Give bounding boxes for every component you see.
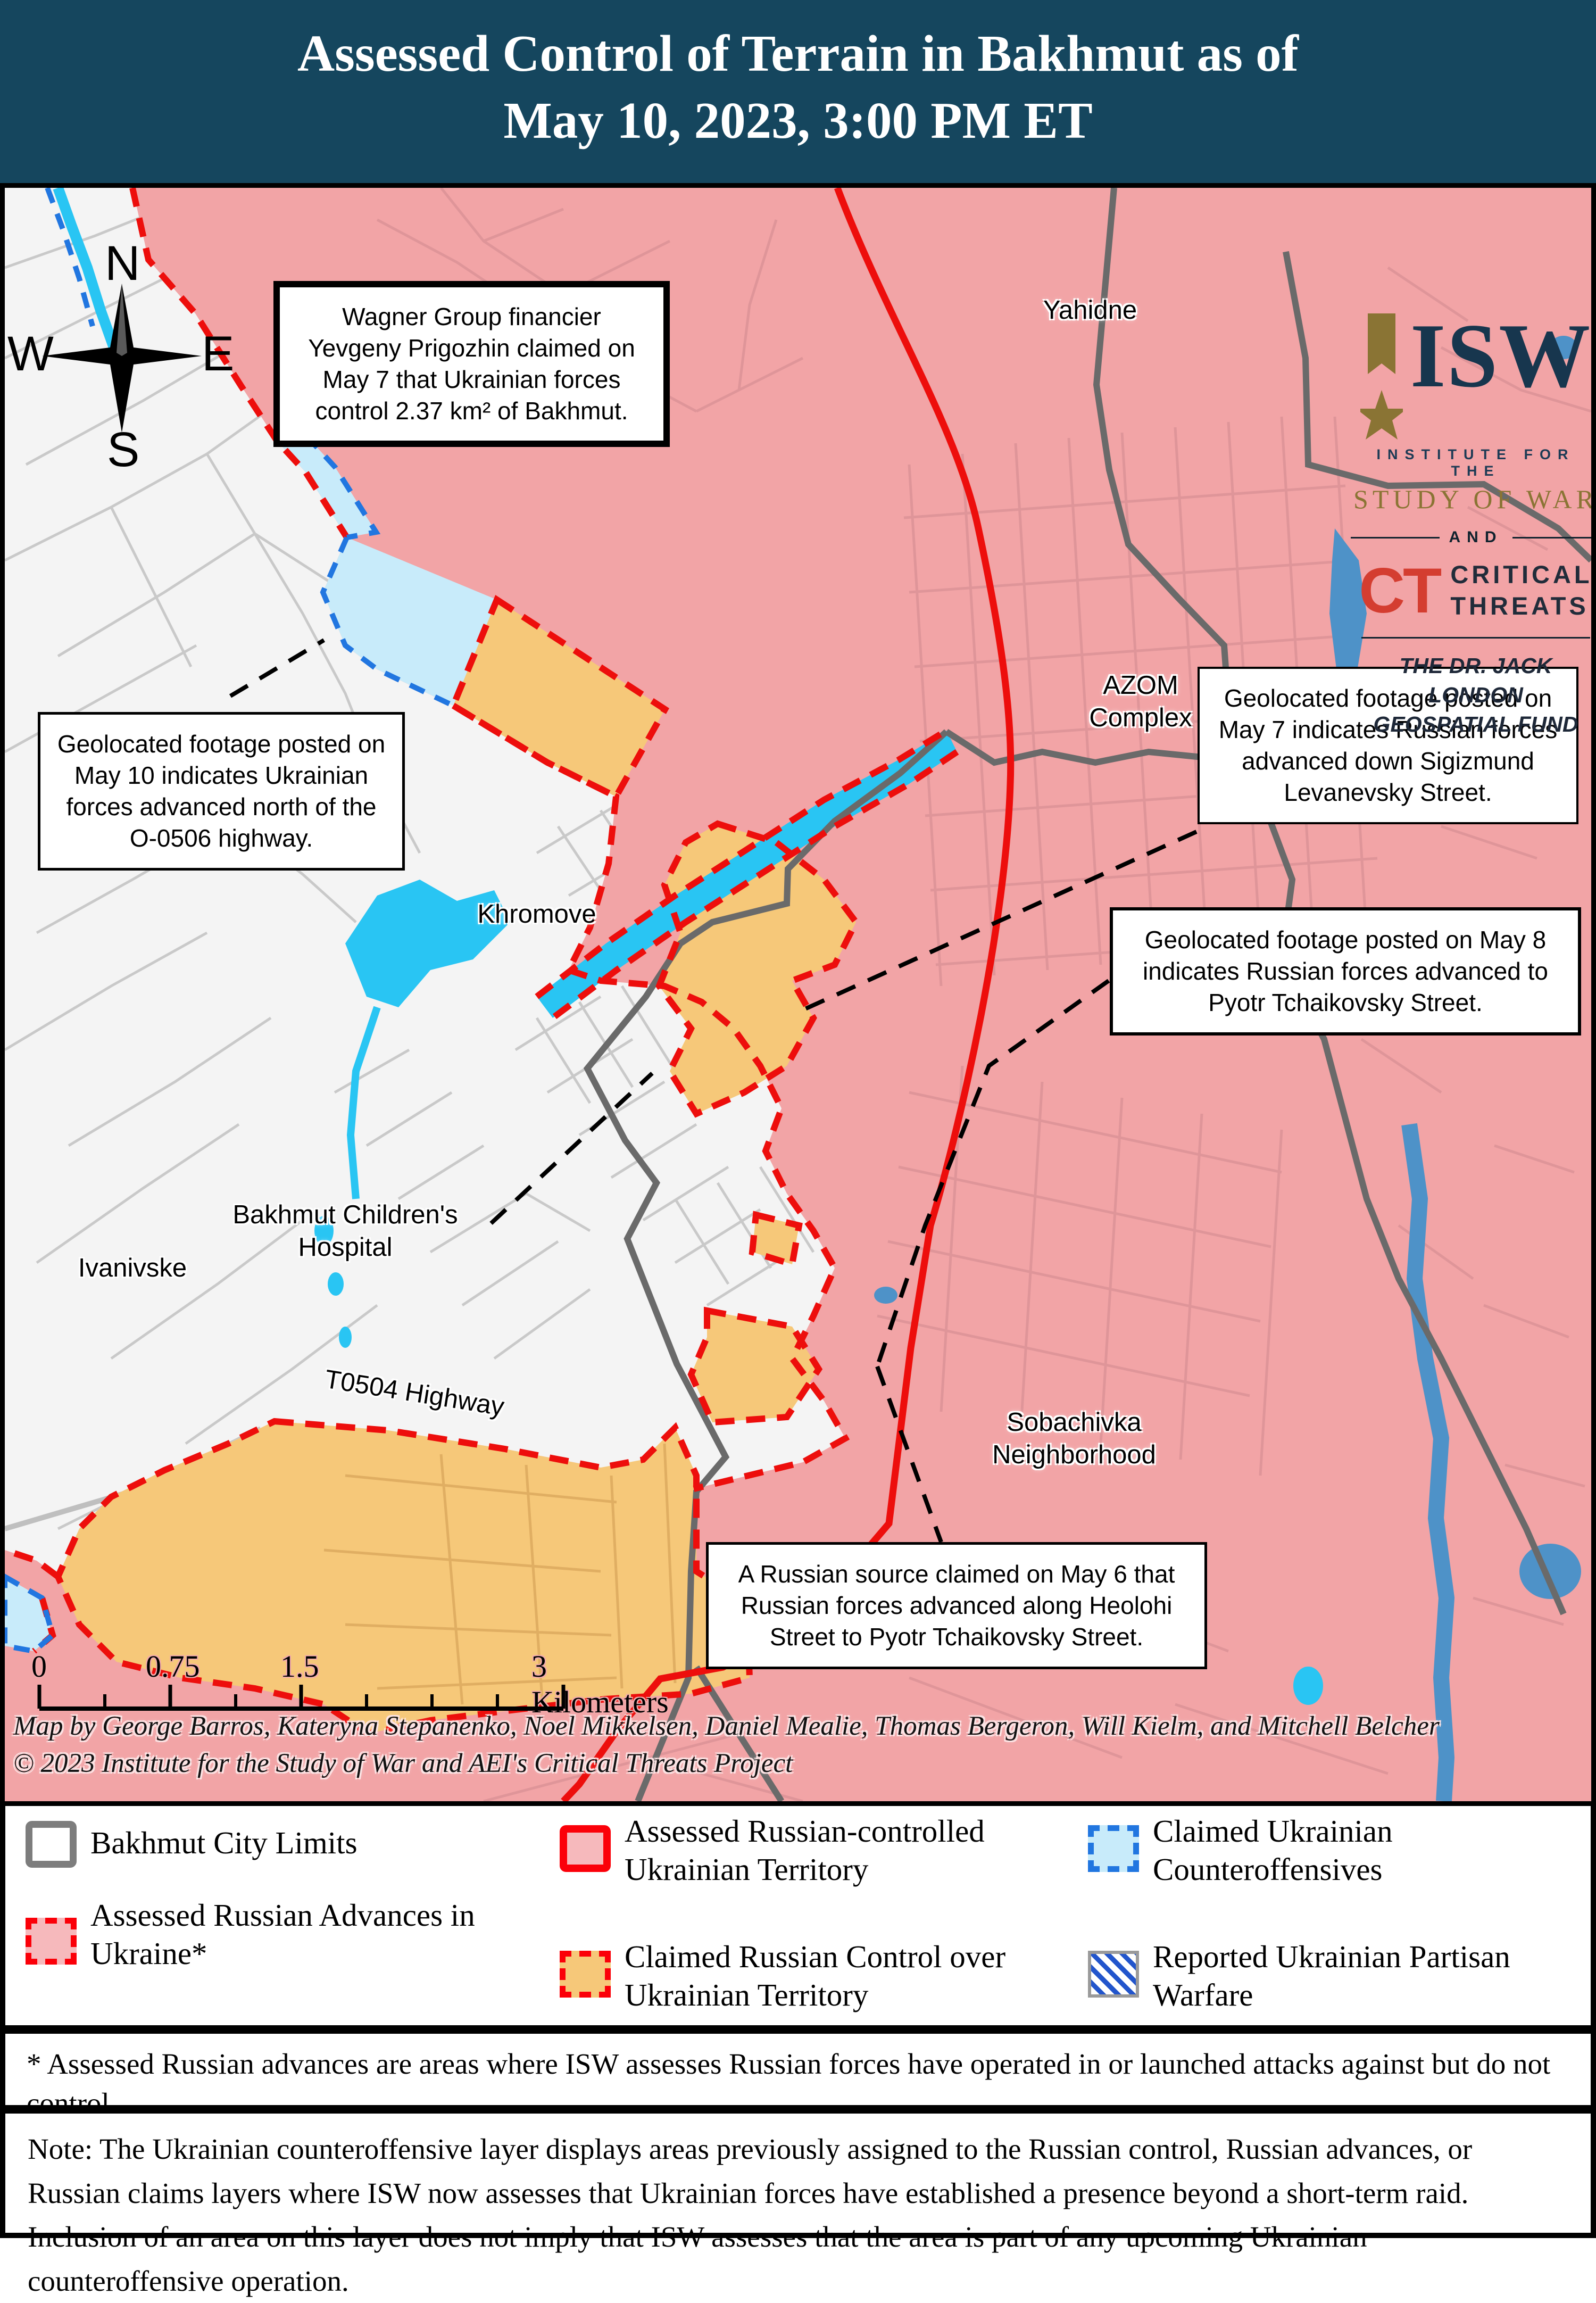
legend-item-russian-advances: Assessed Russian Advances in Ukraine* (26, 1896, 475, 1973)
map-attribution-line2: © 2023 Institute for the Study of War an… (13, 1748, 793, 1779)
scale-15: 1.5 (280, 1648, 319, 1684)
pond-city-small (874, 1287, 897, 1304)
map-legend: Bakhmut City Limits Assessed Russian Adv… (0, 1806, 1596, 2025)
russian-advances-swatch-icon (26, 1918, 77, 1965)
label-sobachivka: Sobachivka Neighborhood (962, 1406, 1186, 1472)
pond-small-2 (328, 1272, 344, 1296)
advances-footnote: * Assessed Russian advances are areas wh… (0, 2025, 1596, 2105)
map-canvas[interactable]: N W E S Yahidne AZOM Complex Khromove Ba… (0, 183, 1596, 1806)
label-childrens-hospital: Bakhmut Children's Hospital (212, 1199, 478, 1264)
legend-item-russian-controlled: Assessed Russian-controlled Ukrainian Te… (560, 1812, 985, 1889)
legend-item-city-limits: Bakhmut City Limits (26, 1821, 358, 1868)
page-title-line1: Assessed Control of Terrain in Bakhmut a… (0, 0, 1596, 87)
compass-south-label: S (107, 422, 139, 478)
isw-institute-text: INSTITUTE FOR THE (1351, 446, 1596, 479)
critical-threats-ct-icon: CT (1359, 562, 1440, 619)
legend-item-partisan-warfare: Reported Ukrainian Partisan Warfare (1088, 1938, 1510, 2015)
callout-may6-russian-claim: A Russian source claimed on May 6 that R… (706, 1542, 1207, 1669)
scale-0: 0 (31, 1648, 47, 1684)
logo-rule (1361, 637, 1590, 639)
scale-bar-ticks (37, 1685, 595, 1711)
divider-right (1512, 537, 1596, 539)
callout-may10-ukrainian-advance: Geolocated footage posted on May 10 indi… (38, 712, 405, 871)
legend-label: Claimed Russian Control over Ukrainian T… (625, 1938, 1005, 2015)
callout-wagner-claim: Wagner Group financier Yevgeny Prigozhin… (273, 281, 670, 447)
counteroffensives-swatch-icon (1088, 1825, 1139, 1872)
scale-075: 0.75 (146, 1648, 200, 1684)
geospatial-fund-text: THE DR. JACK LONDON GEOSPATIAL FUND (1351, 651, 1596, 740)
scale-bar: 0 0.75 1.5 3 Kilometers (31, 1648, 617, 1712)
partisan-warfare-swatch-icon (1088, 1951, 1139, 1998)
logo-and-text: AND (1449, 528, 1503, 546)
label-azom-complex: AZOM Complex (1061, 669, 1220, 735)
isw-ribbon-star-icon (1360, 310, 1403, 443)
isw-ct-logo: ISW INSTITUTE FOR THE STUDY OF WAR AND C… (1351, 310, 1596, 740)
legend-label: Claimed Ukrainian Counteroffensives (1153, 1812, 1393, 1889)
divider-left (1351, 537, 1440, 539)
critical-threats-wordmark: CRITICAL THREATS (1450, 559, 1592, 622)
compass-west-label: W (7, 326, 54, 382)
compass-east-label: E (202, 326, 234, 382)
callout-may8-russian-advance: Geolocated footage posted on May 8 indic… (1110, 907, 1581, 1035)
legend-label: Reported Ukrainian Partisan Warfare (1153, 1938, 1510, 2015)
map-attribution-line1: Map by George Barros, Kateryna Stepanenk… (13, 1711, 1440, 1742)
russian-controlled-swatch-icon (560, 1825, 611, 1872)
isw-wordmark: ISW (1410, 310, 1592, 402)
isw-bakhmut-map-page: Assessed Control of Terrain in Bakhmut a… (0, 0, 1596, 2238)
compass-north-label: N (105, 236, 140, 292)
legend-item-ukrainian-counteroffensives: Claimed Ukrainian Counteroffensives (1088, 1812, 1393, 1889)
isw-study-of-war-text: STUDY OF WAR (1351, 484, 1596, 515)
pond-small-3 (339, 1327, 352, 1348)
compass-rose: N W E S (26, 252, 218, 475)
label-khromove: Khromove (441, 898, 633, 931)
claimed-russian-swatch-icon (560, 1951, 611, 1998)
legend-label: Bakhmut City Limits (90, 1824, 358, 1862)
title-banner: Assessed Control of Terrain in Bakhmut a… (0, 0, 1596, 183)
pond-sobachivka (1293, 1667, 1323, 1705)
legend-label: Assessed Russian-controlled Ukrainian Te… (625, 1812, 985, 1889)
label-yahidne: Yahidne (1005, 294, 1175, 327)
page-title-line2: May 10, 2023, 3:00 PM ET (0, 87, 1596, 154)
counteroffensive-note: Note: The Ukrainian counteroffensive lay… (0, 2105, 1596, 2238)
city-limits-swatch-icon (26, 1821, 77, 1868)
label-ivanivske: Ivanivske (37, 1252, 228, 1285)
legend-item-claimed-russian: Claimed Russian Control over Ukrainian T… (560, 1938, 1005, 2015)
legend-label: Assessed Russian Advances in Ukraine* (90, 1896, 475, 1973)
